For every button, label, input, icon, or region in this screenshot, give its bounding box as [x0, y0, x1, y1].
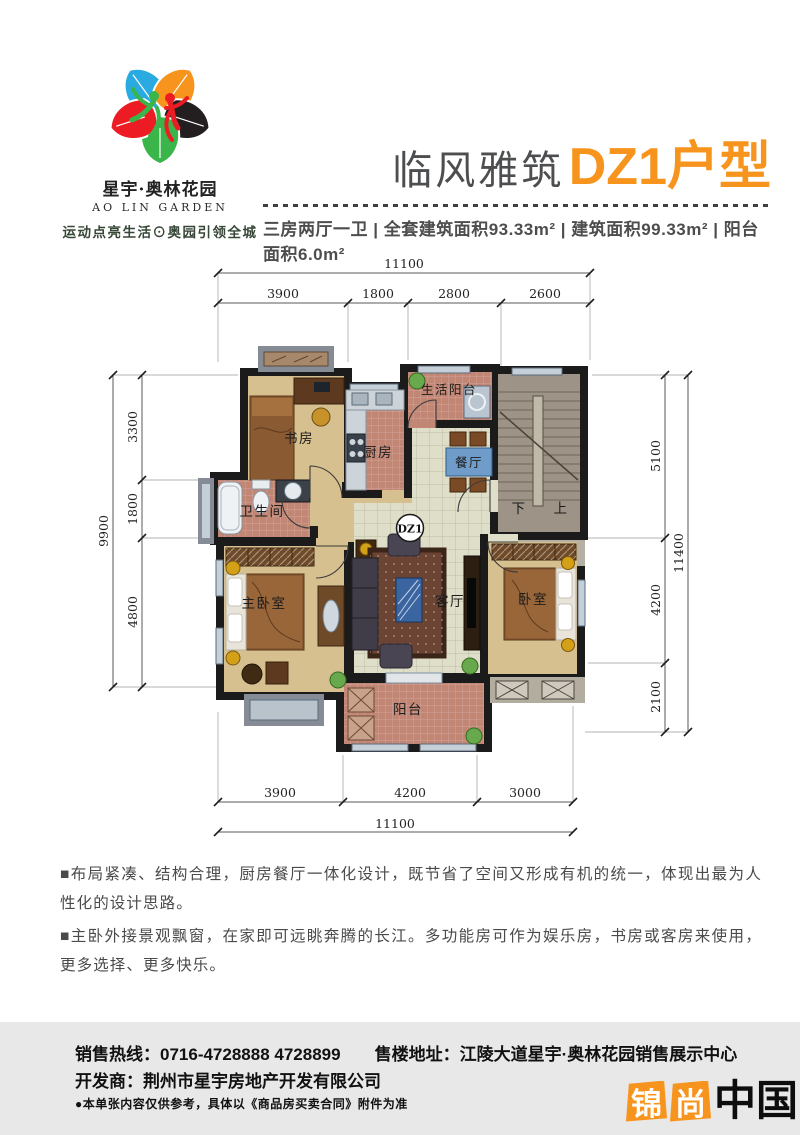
master-window-2 — [216, 628, 223, 664]
unit-badge-label: DZ1 — [397, 523, 422, 536]
developer-value: 荆州市星宇房地产开发有限公司 — [143, 1072, 381, 1091]
description: ■布局紧凑、结构合理，厨房餐厅一体化设计，既节省了空间又形成有机的统一，体现出最… — [60, 860, 762, 984]
stairs-down-label: 下 — [512, 501, 527, 516]
bedroom-pillow — [558, 604, 572, 630]
dim-right-seg1: 5100 — [648, 440, 663, 472]
master-nightstand — [226, 651, 240, 665]
bathroom-door-opening — [310, 498, 318, 526]
flyer-page: 星宇·奥林花园 AO LIN GARDEN 运动点亮生活⊙奥园引领全城 临风雅筑… — [0, 0, 800, 1135]
room-label-balcony: 阳台 — [393, 702, 423, 717]
dim-right-seg3: 2100 — [648, 681, 663, 713]
footer-contact-line: 销售热线：0716-4728888 4728899售楼地址：江陵大道星宇·奥林花… — [75, 1040, 737, 1065]
bath-sink — [285, 483, 302, 500]
dining-chair — [470, 432, 486, 446]
study-bay-sill — [264, 352, 328, 366]
master-stool — [242, 664, 262, 684]
dim-bottom-seg1: 3900 — [264, 785, 296, 800]
study-bed-pillow — [252, 398, 292, 416]
dim-top-seg2: 1800 — [362, 286, 394, 301]
description-para-1: ■布局紧凑、结构合理，厨房餐厅一体化设计，既节省了空间又形成有机的统一，体现出最… — [60, 860, 762, 919]
page-title: 临风雅筑 DZ1户型 — [263, 124, 771, 199]
title-block: 临风雅筑 DZ1户型 三房两厅一卫 | 全套建筑面积93.33m² | 建筑面积… — [263, 124, 771, 265]
footer: 销售热线：0716-4728888 4728899售楼地址：江陵大道星宇·奥林花… — [0, 1022, 800, 1135]
description-para-2: ■主卧外接景观飘窗，在家即可远眺奔腾的长江。多功能房可作为娱乐房，书房或客房来使… — [60, 922, 762, 981]
watermark-box-2: 尚 — [670, 1081, 711, 1122]
room-label-bathroom: 卫生间 — [240, 504, 285, 519]
dim-right-seg2: 4200 — [648, 584, 663, 616]
dim-bottom-seg3: 3000 — [509, 785, 541, 800]
master-bay-glass — [250, 700, 318, 720]
bathroom-bay-glass — [202, 484, 210, 538]
dimension-right: 5100 4200 2100 11400 — [585, 371, 692, 736]
study-door-opening — [308, 482, 342, 498]
kitchen-sink-2 — [376, 393, 392, 405]
plant — [466, 728, 482, 744]
brand-logo: 星宇·奥林花园 AO LIN GARDEN 运动点亮生活⊙奥园引领全城 — [62, 56, 258, 241]
master-pillow — [228, 578, 242, 606]
study-chair — [312, 408, 330, 426]
floor-plan: 11100 3900 1800 2800 2600 9900 3300 1800… — [0, 250, 800, 850]
plant — [330, 672, 346, 688]
dim-left-total: 9900 — [96, 515, 111, 547]
dim-top-total: 11100 — [384, 256, 424, 271]
stairwell-window — [512, 368, 562, 375]
hotline-number: 0716-4728888 4728899 — [160, 1045, 341, 1064]
master-pillow — [228, 614, 242, 642]
master-door-opening — [316, 538, 348, 550]
dining-chair — [450, 478, 466, 492]
title-main: DZ1户型 — [569, 138, 771, 196]
dim-left-seg3: 4800 — [125, 596, 140, 628]
plant — [462, 658, 478, 674]
room-label-dining: 餐厅 — [455, 455, 483, 470]
watermark: 锦 尚 中国 — [626, 1080, 798, 1122]
stair-rail — [533, 396, 543, 506]
service-balcony-window — [418, 366, 470, 373]
balcony-rail-1 — [352, 744, 408, 751]
logo-name-cn: 星宇·奥林花园 — [62, 175, 258, 200]
master-nightstand — [226, 561, 240, 575]
room-label-kitchen: 厨房 — [363, 445, 393, 460]
dim-left-seg1: 3300 — [125, 411, 140, 443]
dim-top-seg3: 2800 — [438, 286, 470, 301]
bedroom-door-opening — [488, 534, 518, 542]
dim-bottom-seg2: 4200 — [394, 785, 426, 800]
room-label-master: 主卧室 — [242, 595, 287, 611]
address-value: 江陵大道星宇·奥林花园销售展示中心 — [460, 1045, 738, 1064]
logo-name-en: AO LIN GARDEN — [62, 201, 258, 214]
sofa — [352, 558, 378, 650]
logo-tagline: 运动点亮生活⊙奥园引领全城 — [62, 221, 258, 241]
room-label-bedroom: 卧室 — [518, 591, 548, 607]
study-monitor — [314, 382, 330, 392]
title-prefix: 临风雅筑 — [392, 148, 564, 194]
footer-developer-line: 开发商：荆州市星宇房地产开发有限公司 — [75, 1067, 381, 1092]
room-label-service-balcony: 生活阳台 — [421, 382, 477, 397]
stairs-up-label: 上 — [554, 501, 569, 516]
room-label-living: 客厅 — [435, 593, 465, 609]
dim-left-seg2: 1800 — [125, 493, 140, 525]
toilet-tank — [252, 480, 270, 489]
bedroom-window — [578, 580, 585, 626]
kitchen-sink-1 — [352, 393, 368, 405]
balcony-rail-2 — [420, 744, 476, 751]
armchair — [380, 644, 412, 668]
service-balcony-door-opening — [408, 420, 436, 428]
dashed-divider — [263, 204, 771, 207]
master-table — [266, 662, 288, 684]
tv — [467, 578, 476, 628]
hotline-label: 销售热线： — [75, 1045, 160, 1064]
address-label: 售楼地址： — [375, 1045, 460, 1064]
dining-chair — [450, 432, 466, 446]
bedroom-nightstand — [562, 639, 575, 652]
bedroom-nightstand — [562, 557, 575, 570]
dim-bottom-total: 11100 — [375, 816, 415, 831]
watermark-suffix: 中国 — [714, 1080, 798, 1122]
developer-label: 开发商： — [75, 1072, 143, 1091]
brand-logo-mark-icon — [75, 56, 245, 172]
room-label-study: 书房 — [284, 431, 314, 446]
watermark-box-1: 锦 — [626, 1081, 667, 1122]
dim-top-seg4: 2600 — [529, 286, 561, 301]
footer-disclaimer: ●本单张内容仅供参考，具体以《商品房买卖合同》附件为准 — [75, 1095, 408, 1112]
dim-right-total: 11400 — [671, 533, 686, 573]
bedroom-pillow — [558, 572, 572, 598]
master-window-1 — [216, 560, 223, 596]
balcony-sliding-door — [386, 673, 442, 683]
entry-door-opening — [490, 480, 498, 512]
kitchen-opening — [382, 490, 404, 498]
dim-top-seg1: 3900 — [267, 286, 299, 301]
